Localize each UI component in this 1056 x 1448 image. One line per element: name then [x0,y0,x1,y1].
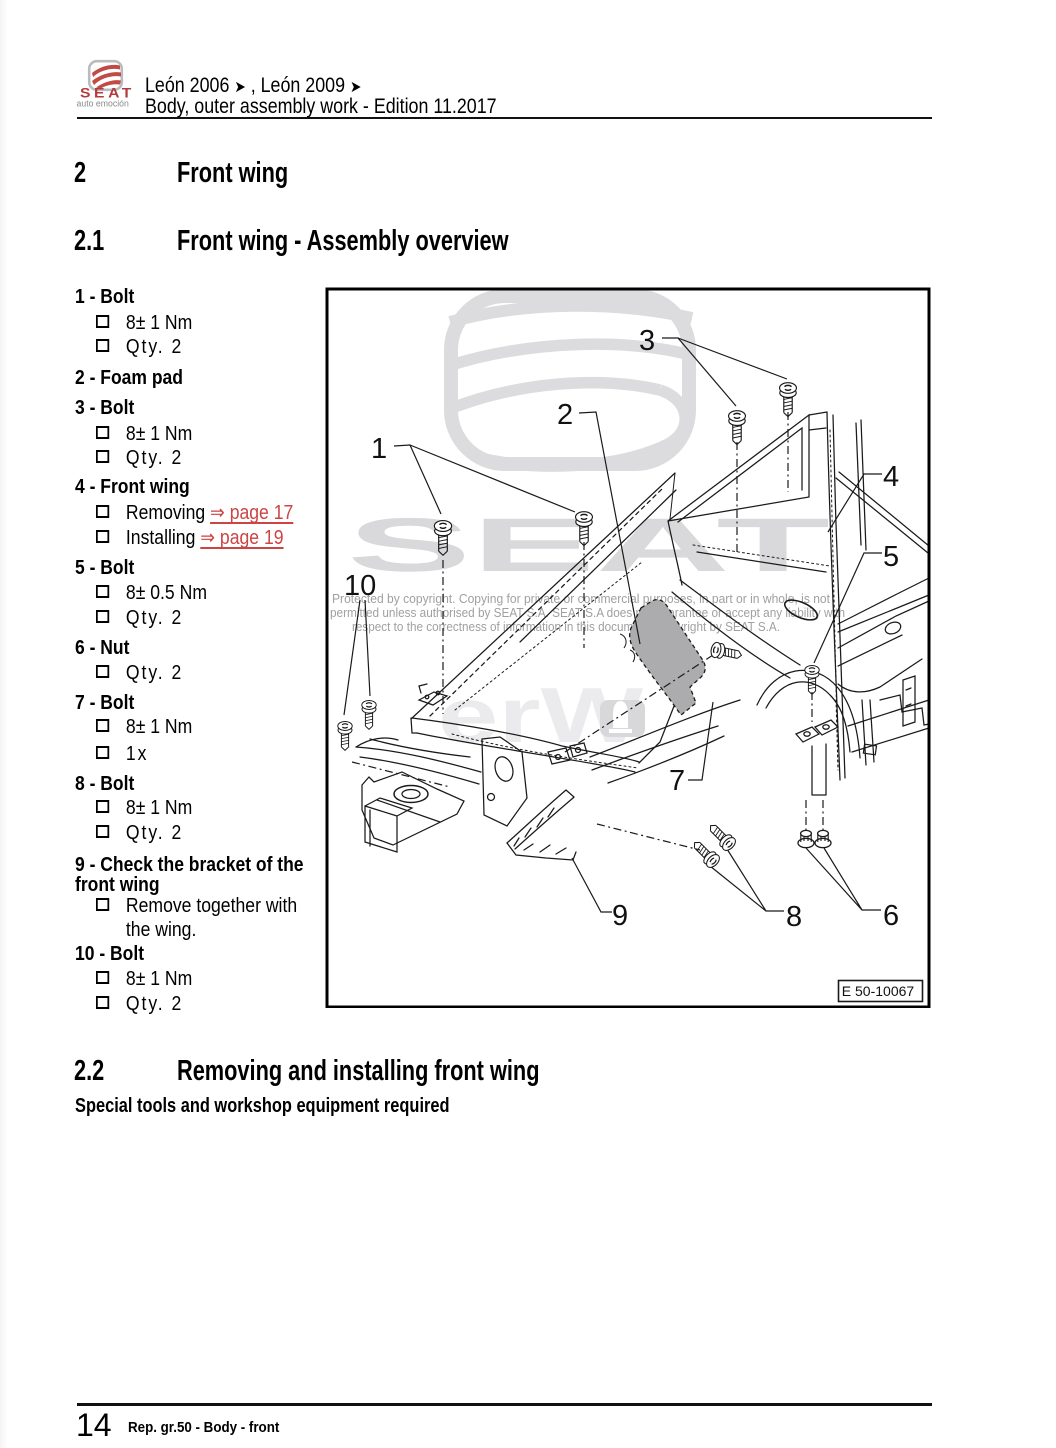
svg-text:5: 5 [883,541,899,573]
svg-text:E 50-10067: E 50-10067 [842,983,915,999]
svg-text:auto emoción: auto emoción [77,98,129,108]
svg-text:3: 3 [639,325,655,357]
svg-text:6: 6 [883,900,899,932]
svg-text:Protected by copyright. Copyin: Protected by copyright. Copying for priv… [332,591,830,606]
svg-text:2: 2 [557,399,573,431]
svg-text:10: 10 [344,570,376,602]
svg-text:4: 4 [883,461,899,493]
svg-text:permitted unless authorised by: permitted unless authorised by SEAT S.A.… [330,605,845,620]
svg-text:7: 7 [669,765,685,797]
svg-text:respect to the correctness of: respect to the correctness of informatio… [352,619,780,634]
svg-text:9: 9 [612,900,628,932]
svg-text:1: 1 [371,433,387,465]
svg-text:8: 8 [786,901,802,933]
